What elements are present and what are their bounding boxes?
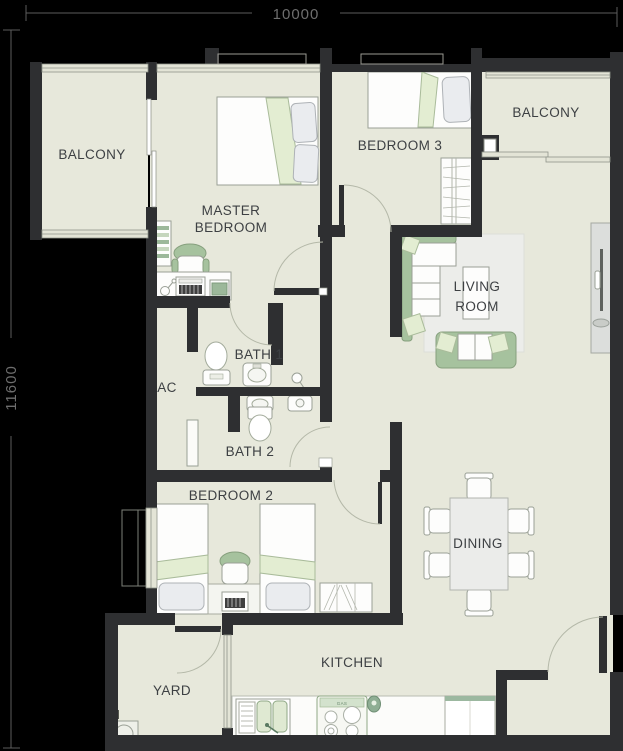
window-frame (361, 54, 443, 64)
bedroom2-window-ledge (122, 510, 146, 586)
label-master-line2: BEDROOM (195, 220, 268, 235)
label-bath2: BATH 2 (226, 444, 275, 459)
label-ac: AC (157, 380, 177, 395)
label-balcony-left: BALCONY (58, 147, 125, 162)
bath1-sink (243, 363, 271, 386)
door-leaf (274, 288, 323, 295)
label-bath1: BATH 1 (235, 347, 284, 362)
label-master-line1: MASTER (202, 203, 261, 218)
door-leaf (378, 482, 382, 524)
label-bedroom2: BEDROOM 2 (189, 488, 274, 503)
window-frame (218, 54, 306, 64)
bedroom3-wardrobe (441, 158, 472, 224)
door-leaf (339, 185, 344, 232)
dimension-height-label: 11600 (3, 365, 20, 411)
floor-plan-svg: GAS (0, 0, 623, 751)
master-bed (217, 97, 319, 185)
floor-plan-canvas: GAS (0, 0, 623, 751)
bedroom3-bed (368, 72, 472, 128)
entrance-door-leaf (599, 616, 607, 673)
bedroom2-bed-right (260, 504, 315, 614)
ac-unit-icon (484, 139, 496, 152)
kitchen-knob-icon (368, 696, 381, 712)
stove-label: GAS (337, 701, 347, 706)
kitchen-stove: GAS (317, 696, 367, 738)
kitchen-sink (236, 699, 290, 736)
bath2-toilet (248, 407, 272, 441)
door-leaf (268, 303, 274, 345)
dimension-top: 10000 (26, 5, 617, 27)
bedroom2-wardrobe (320, 583, 372, 612)
tv-console (591, 223, 612, 353)
bedroom2-bed-left (155, 504, 208, 614)
label-living-line1: LIVING (454, 279, 501, 294)
fridge (445, 696, 495, 738)
label-bedroom3: BEDROOM 3 (358, 138, 443, 153)
bedroom2-desk (208, 584, 260, 614)
small-sofa (436, 332, 516, 368)
label-dining: DINING (453, 536, 503, 551)
door-leaf (187, 420, 198, 466)
label-kitchen: KITCHEN (321, 655, 383, 670)
bath2-shower-icon (288, 396, 312, 411)
keyboard-icon (179, 285, 202, 294)
label-yard: YARD (153, 683, 191, 698)
master-desk (156, 272, 231, 300)
bedroom2-chair (220, 552, 250, 584)
label-balcony-right: BALCONY (512, 105, 579, 120)
dimension-width-label: 10000 (273, 6, 320, 23)
label-living-line2: ROOM (455, 299, 499, 314)
door-leaf (175, 626, 221, 632)
dimension-left: 11600 (3, 30, 20, 748)
